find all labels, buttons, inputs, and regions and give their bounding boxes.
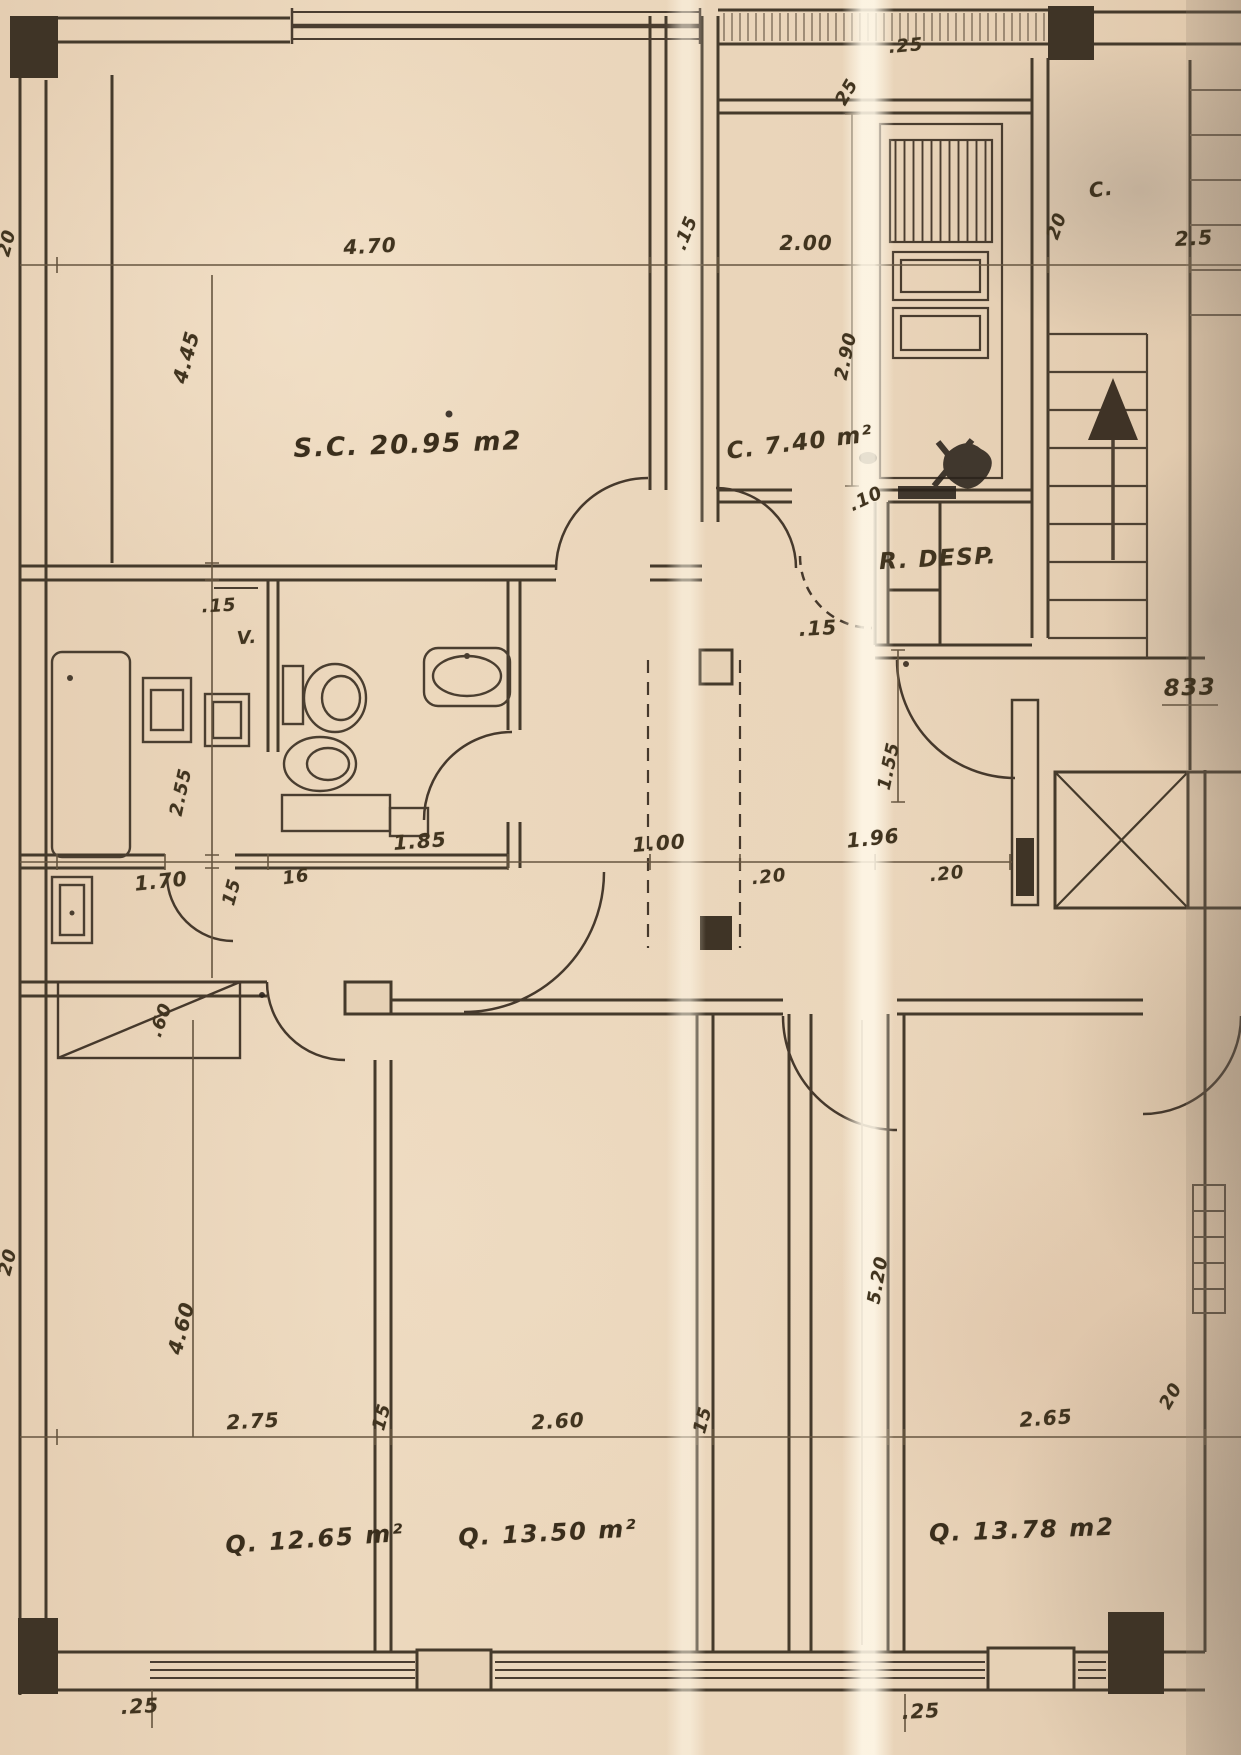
bathroom-door-arc bbox=[424, 732, 512, 820]
dim-label-20-a: .20 bbox=[751, 865, 788, 890]
dim-label-275: 2.75 bbox=[226, 1408, 281, 1435]
dim-label-25-bottom-left: .25 bbox=[120, 1693, 160, 1719]
dim-label-25-top: .25 bbox=[888, 34, 925, 58]
dim-label-260: 2.60 bbox=[531, 1408, 586, 1435]
dim-label-470: 4.70 bbox=[343, 233, 398, 260]
hall-door-arc bbox=[464, 872, 604, 1012]
walls bbox=[20, 10, 1241, 1695]
dim-label-20-b: .20 bbox=[929, 862, 966, 887]
bedroom1-door-arc bbox=[267, 982, 345, 1060]
dim-label-15-bath: .15 bbox=[201, 595, 237, 618]
kitchen-corridor-door-arc bbox=[716, 488, 796, 568]
dimension-lines bbox=[20, 114, 1241, 1732]
dim-label-25-bottom-mid: .25 bbox=[901, 1698, 941, 1724]
dim-label-25-right: 2.5 bbox=[1174, 225, 1214, 251]
light-shaft bbox=[1055, 772, 1188, 908]
bathroom-fixtures bbox=[52, 588, 510, 943]
hall-beam-pier bbox=[700, 650, 732, 684]
dim-label-100: 1.00 bbox=[632, 829, 687, 857]
living-room-door-arc bbox=[556, 478, 648, 570]
number-label-833: 833 bbox=[1163, 674, 1216, 702]
floor-plan-scan: 4.70 .15 2.00 .25 25 C. 20 2.5 2.90 4.45… bbox=[0, 0, 1241, 1755]
wall-fills bbox=[10, 6, 1164, 1694]
entry-door-arc bbox=[897, 660, 1015, 778]
dim-label-200: 2.00 bbox=[779, 231, 832, 255]
radiator bbox=[1193, 1185, 1225, 1313]
vent-label: V. bbox=[236, 627, 258, 650]
windows bbox=[150, 8, 1106, 1678]
hall-beam-dashed-lines bbox=[648, 660, 740, 948]
dim-label-185: 1.85 bbox=[393, 827, 448, 855]
dim-label-15-pantry: .15 bbox=[798, 615, 838, 641]
door-arcs bbox=[167, 478, 1241, 1130]
hall-cabinet bbox=[52, 877, 92, 943]
dim-label-16: 16 bbox=[281, 865, 311, 890]
stairs bbox=[1048, 90, 1241, 658]
toilet-bowl bbox=[304, 664, 366, 732]
bedroom-corridor-door-arc bbox=[783, 1016, 897, 1130]
dim-label-265: 2.65 bbox=[1019, 1404, 1074, 1432]
kitchen-drainer-hatch bbox=[890, 140, 992, 242]
bath-step bbox=[282, 795, 390, 831]
closet-label-c: C. bbox=[1087, 175, 1114, 202]
bedroom3-door-arc bbox=[1143, 1016, 1241, 1114]
laundry-tub bbox=[52, 652, 130, 857]
bidet bbox=[284, 737, 356, 791]
toilet-cistern bbox=[283, 666, 303, 724]
